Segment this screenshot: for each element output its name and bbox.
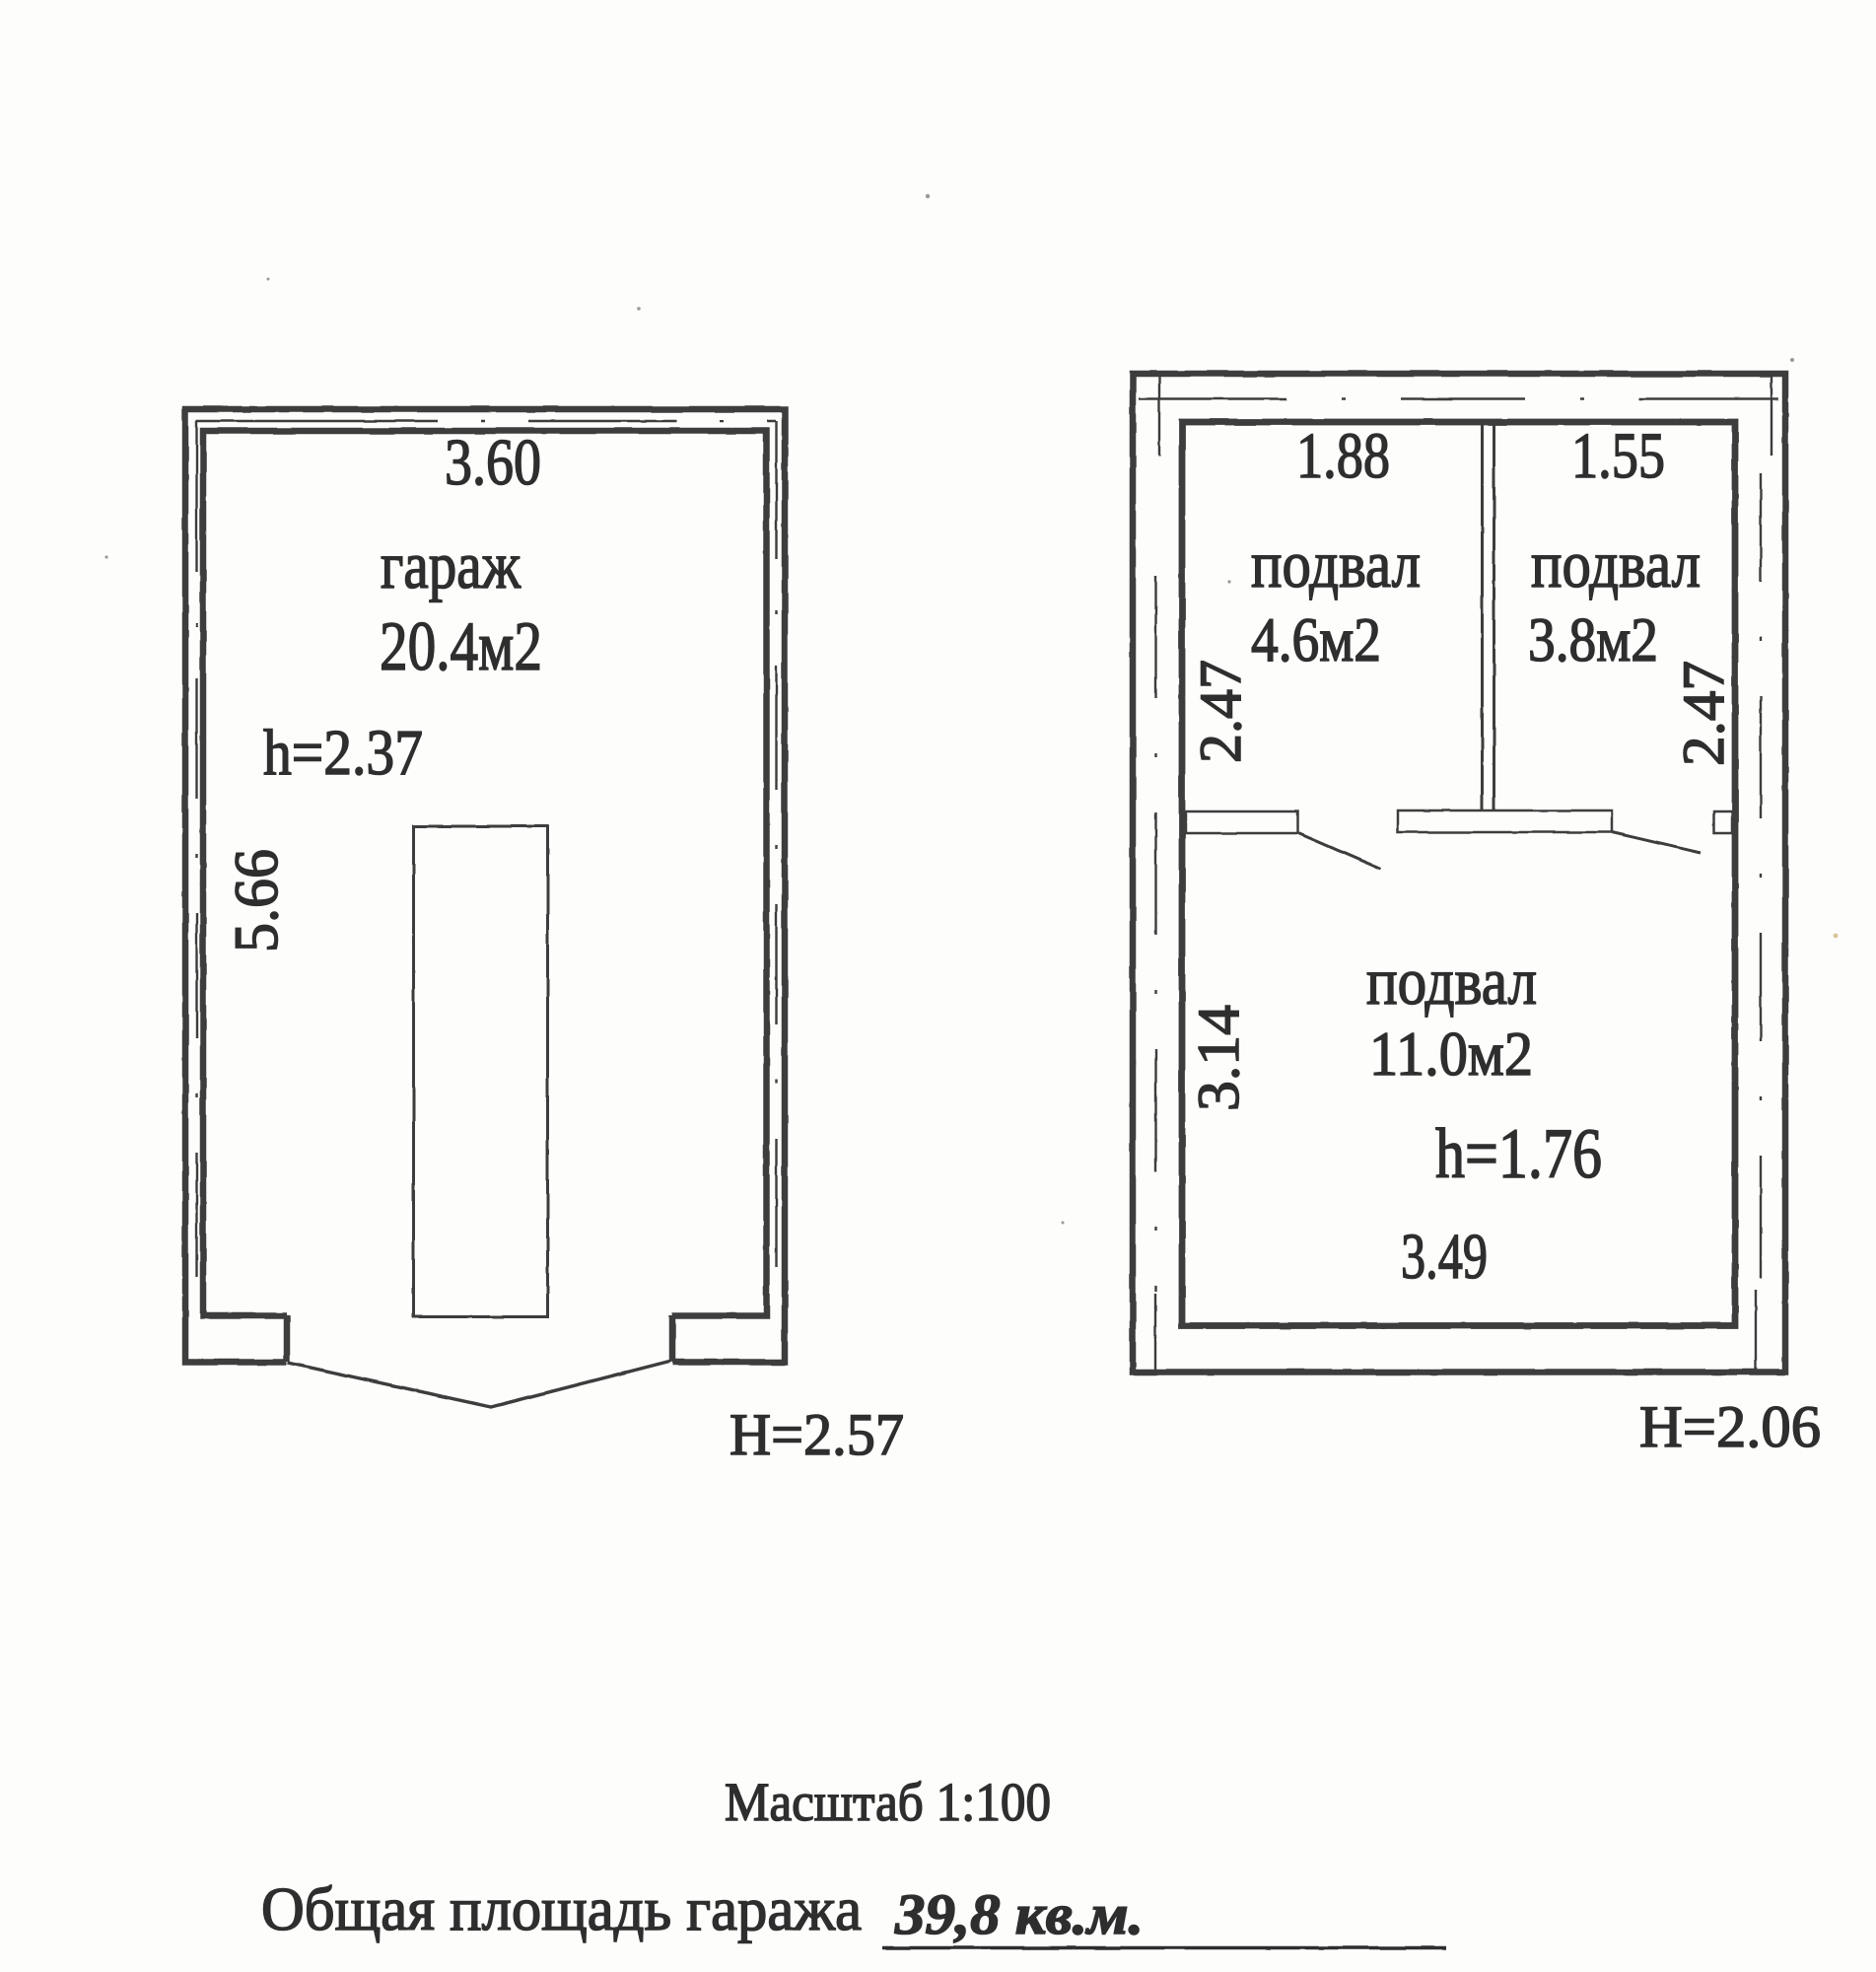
svg-text:2.47: 2.47: [1671, 661, 1736, 766]
svg-text:Общая площадь гаража: Общая площадь гаража: [261, 1876, 862, 1943]
svg-text:подвал: подвал: [1366, 944, 1537, 1019]
svg-text:Н=2.57: Н=2.57: [730, 1402, 904, 1467]
svg-text:3.49: 3.49: [1401, 1221, 1488, 1293]
svg-text:h=2.37: h=2.37: [263, 717, 423, 789]
svg-text:4.6м2: 4.6м2: [1251, 604, 1381, 674]
svg-text:2.47: 2.47: [1188, 660, 1253, 763]
svg-text:Н=2.06: Н=2.06: [1639, 1394, 1821, 1459]
svg-text:1.88: 1.88: [1296, 420, 1390, 492]
svg-text:20.4м2: 20.4м2: [380, 608, 542, 685]
svg-text:1.55: 1.55: [1571, 420, 1665, 492]
svg-text:h=1.76: h=1.76: [1435, 1114, 1602, 1193]
svg-text:11.0м2: 11.0м2: [1369, 1019, 1533, 1089]
svg-text:подвал: подвал: [1251, 527, 1421, 601]
svg-text:3.60: 3.60: [445, 426, 541, 499]
svg-text:3.8м2: 3.8м2: [1528, 604, 1658, 674]
svg-text:5.66: 5.66: [221, 849, 291, 952]
svg-text:3.14: 3.14: [1186, 1005, 1251, 1111]
svg-text:39,8 кв.м.: 39,8 кв.м.: [894, 1882, 1144, 1946]
svg-text:подвал: подвал: [1531, 527, 1701, 601]
svg-text:гараж: гараж: [381, 528, 521, 602]
svg-text:Масштаб 1:100: Масштаб 1:100: [725, 1772, 1051, 1832]
